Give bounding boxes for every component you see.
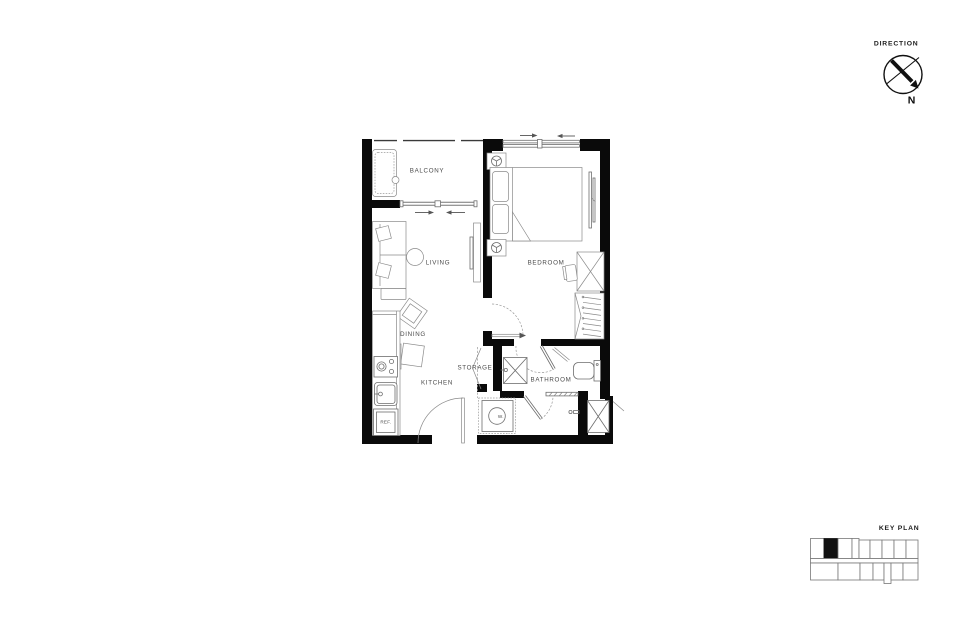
coffee-table (407, 249, 424, 266)
refrigerator-label: REF. (380, 420, 391, 425)
sofa (373, 222, 407, 300)
key-plan-building (811, 539, 919, 584)
wardrobe (575, 293, 604, 339)
wall-bedroom-top-left (483, 139, 503, 151)
hall-door (524, 396, 554, 420)
vanity-sink (501, 358, 528, 384)
key-plan-unit (884, 563, 891, 584)
washer-label: W. (498, 414, 504, 419)
tv (470, 237, 473, 269)
key-plan-unit (891, 563, 903, 580)
dining-table (401, 343, 425, 367)
direction-indicator: DIRECTION N (874, 41, 922, 107)
key-plan-unit (859, 540, 870, 559)
wall-balcony-living (362, 200, 400, 208)
bathroom-label: BATHROOM (531, 377, 572, 384)
key-plan-unit (870, 540, 882, 559)
sofa-pillow (376, 226, 392, 242)
key-plan-unit (838, 539, 852, 559)
shower-closet (588, 401, 625, 433)
key-plan-highlighted-unit (824, 539, 838, 559)
key-plan-corridor (811, 559, 919, 564)
bed (490, 168, 582, 242)
wall-bathroom-top-left (483, 339, 514, 346)
key-plan-unit (903, 563, 918, 580)
direction-label: DIRECTION (874, 41, 919, 48)
dining-label: DINING (400, 331, 426, 338)
wall-bottom-left (362, 435, 432, 444)
wall-shower-block (578, 391, 588, 438)
floor-plan-canvas: REF. W. (0, 0, 970, 620)
shower-closet-door (613, 402, 624, 412)
key-plan-unit (873, 563, 884, 580)
storage-label: STORAGE (457, 365, 492, 372)
balcony-sliding-door (400, 201, 477, 215)
key-plan-unit (838, 563, 860, 580)
bedroom-window (503, 133, 580, 148)
balcony-label: BALCONY (410, 168, 444, 175)
pillow (493, 205, 509, 234)
key-plan-unit (894, 540, 906, 559)
ottoman (381, 289, 406, 300)
sofa-pillow (376, 263, 392, 279)
floor-plan-page: REF. W. (0, 0, 970, 620)
balcony-lounge-chair (373, 150, 400, 197)
washing-machine: W. (479, 398, 516, 434)
bedroom-label: BEDROOM (528, 260, 565, 267)
balcony-side-table (392, 177, 399, 184)
pillow (493, 172, 509, 202)
key-plan: KEY PLAN (811, 525, 920, 584)
north-label: N (908, 95, 916, 107)
key-plan-unit (811, 539, 825, 559)
towel-bar (553, 348, 570, 362)
wall-bathroom-top-right (541, 339, 605, 346)
kitchen-label: KITCHEN (421, 380, 453, 387)
floor-plan: REF. W. (362, 133, 624, 444)
kitchen-sink (375, 383, 398, 406)
key-plan-unit (906, 540, 918, 559)
key-plan-unit (860, 563, 873, 580)
compass-icon (884, 56, 922, 94)
key-plan-corridor (852, 539, 859, 559)
key-plan-unit (811, 563, 839, 580)
glass-partition (546, 392, 578, 396)
toilet (574, 361, 601, 382)
key-plan-unit (882, 540, 894, 559)
refrigerator: REF. (374, 409, 399, 436)
wall-tv (589, 172, 596, 228)
stove (374, 357, 398, 378)
wall-bottom-right (477, 435, 613, 444)
wall-storage-bathroom (493, 346, 502, 391)
key-plan-label: KEY PLAN (879, 525, 920, 532)
wall-bathroom-bottom-left (500, 391, 524, 398)
nightstand-top (487, 153, 506, 170)
living-label: LIVING (426, 260, 451, 267)
tv-console (470, 223, 481, 282)
desk (563, 252, 604, 291)
wall-storage-stub (477, 384, 487, 392)
bedroom-door (492, 304, 526, 338)
robe-hook-icon (569, 410, 579, 413)
nightstand-bottom (487, 240, 506, 257)
wall-left (362, 139, 372, 444)
